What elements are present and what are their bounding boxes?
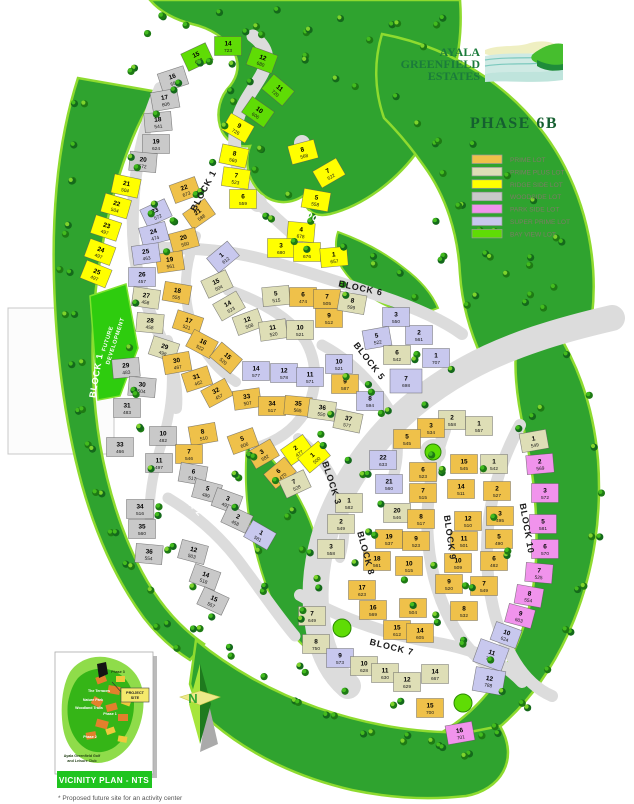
lot-number: 9 [414,536,418,543]
lot-area: 570 [541,551,549,557]
tree-icon [65,222,69,226]
tree-icon [299,547,303,551]
lot-area: 633 [379,462,387,468]
lot-area: 509 [454,565,462,571]
lot: 12629 [394,673,421,692]
lot: 7523 [221,167,250,190]
tree-icon [75,408,79,412]
lot-area: 534 [427,430,435,436]
tree-icon [197,625,201,629]
tree-icon [232,471,236,475]
lot: 7505 [314,290,341,309]
tree-icon [144,30,148,34]
lot-area: 512 [325,320,333,326]
tree-icon [302,57,306,61]
lot: 14667 [422,665,449,684]
tree-icon [360,471,364,475]
lot-area: 542 [490,466,498,472]
lot: 28458 [136,312,165,333]
lot-number: 20 [393,508,401,515]
tree-icon [414,120,418,124]
lot-area: 523 [419,474,427,480]
lot-area: 554 [144,556,153,563]
site-development-map: FUTURE DEVELOPMENT 156881472312680117201… [0,0,634,804]
tree-icon [71,100,75,104]
tree-icon [67,269,71,273]
lot: 3534 [418,419,445,438]
tree-icon [412,356,416,360]
tree-icon [439,466,443,470]
lot: 7525 [525,562,554,583]
lot-area: 515 [272,298,281,305]
tree-icon [369,729,373,733]
lot: 34517 [259,397,286,416]
lot-number: 3 [543,488,547,495]
lot-area: 569 [536,466,545,473]
lot-area: 624 [152,146,160,152]
lot-number: 36 [145,548,153,556]
legend-swatch [472,192,502,201]
tree-icon [433,612,437,616]
tree-icon [81,101,85,105]
lot: 1707 [423,349,450,368]
lot-area: 572 [541,495,549,501]
lot-area: 628 [360,668,368,674]
lot-number: 14 [416,628,424,635]
lot-number: 15 [426,703,434,710]
lot-area: 667 [431,676,439,682]
lot-number: 5 [541,519,545,526]
green-circle-lot [454,694,472,712]
tree-icon [85,442,89,446]
lot: 20546 [384,504,411,523]
tree-icon [123,561,127,565]
lot-number: 3 [279,243,283,250]
tree-icon [563,626,567,630]
lot: 8532 [451,602,478,621]
lot-area: 517 [268,408,276,414]
tree-icon [469,584,473,588]
tree-icon [526,262,530,266]
tree-icon [343,292,347,296]
lot-area: 698 [402,383,410,389]
lot-number: 14 [431,669,439,676]
tree-icon [302,669,306,673]
tree-icon [71,142,75,146]
tree-icon [155,512,159,516]
vicinity-label: Nature Park [83,698,103,702]
legend-swatch [472,205,502,214]
lot-area: 561 [415,337,423,343]
lot-number: 17 [358,585,366,592]
tree-icon [253,23,257,27]
tree-icon [228,653,232,657]
tree-icon [581,583,585,587]
tree-icon [251,454,255,458]
tree-icon [440,170,444,174]
tree-icon [261,673,265,677]
lot-number: 11 [156,458,163,465]
tree-icon [197,60,201,64]
lot-area: 511 [457,491,465,497]
lot: 10521 [326,355,353,374]
tree-icon [175,80,179,84]
legend-swatch [472,217,502,226]
legend-swatch [472,155,502,164]
tree-icon [390,702,394,706]
lot-area: 537 [385,541,393,547]
lot-number: 6 [492,556,496,563]
tree-icon [108,529,112,533]
tree-icon [597,534,601,538]
lot-number: 2 [450,415,454,422]
lot-number: 6 [241,194,245,201]
lot-number: 8 [419,514,423,521]
lot: 31483 [114,399,141,418]
lot-number: 25 [142,248,150,256]
lot: 9523 [403,532,430,551]
tree-icon [257,146,261,150]
lot-area: 680 [277,250,285,256]
compass-n-label: N [188,691,197,706]
tree-icon [495,730,499,734]
lot-number: 10 [296,325,304,332]
lot-area: 707 [432,360,440,366]
lot-area: 463 [142,255,151,262]
tree-icon [318,431,322,435]
lot-area: 569 [369,612,377,618]
lot-area: 523 [412,543,420,549]
tree-icon [209,614,213,618]
tree-icon [434,619,438,623]
tree-icon [154,624,158,628]
lot-area: 561 [166,263,175,270]
tree-icon [428,452,432,456]
tree-icon [378,501,382,505]
tree-icon [62,231,66,235]
lot-area: 458 [145,325,154,332]
tree-icon [216,9,220,13]
tree-icon [405,732,409,736]
lot-number: 7 [421,488,425,495]
vicinity-label: The Terraces [88,689,110,693]
lot-area: 557 [475,428,483,434]
lot-number: 12 [280,368,288,375]
tree-icon [435,138,439,142]
tree-icon [433,218,437,222]
lot-area: 527 [493,493,501,499]
lot-number: 2 [417,330,421,337]
lot-area: 504 [409,610,417,616]
lot-number: 16 [369,605,377,612]
tree-icon [378,410,382,414]
tree-icon [365,381,369,385]
lot-number: 3 [394,312,398,319]
tree-icon [113,529,117,533]
logo-line3: ESTATES [428,69,481,83]
lot-area: 605 [416,635,424,641]
legend-label: WOODSIDE LOT [510,194,561,201]
lot-number: 1 [434,353,438,360]
lot-area: 505 [323,301,331,307]
tree-icon [522,299,526,303]
tree-icon [148,587,152,591]
tree-icon [302,53,306,57]
tree-icon [153,111,157,115]
tree-icon [371,261,375,265]
legend-label: BAY VIEW LOT [510,231,556,238]
lot-area: 523 [231,179,240,186]
lot: 29483 [112,357,141,378]
tree-icon [461,753,465,757]
lot: 8517 [408,510,435,529]
tree-icon [487,254,491,258]
tree-icon [438,257,442,261]
lot-number: 8 [314,639,318,646]
tree-icon [170,543,174,547]
tree-icon [128,563,132,567]
lot-area: 587 [341,386,349,392]
lot: 22633 [370,451,397,470]
lot-number: 14 [224,41,232,48]
tree-icon [503,271,507,275]
tree-icon [574,586,578,590]
tree-icon [544,666,548,670]
legend-row: SUPER PRIME LOT [472,217,570,226]
tree-icon [333,76,337,80]
tree-icon [491,514,495,518]
lot-number: 28 [146,317,154,325]
tree-icon [527,254,531,258]
lot-number: 1 [492,459,496,466]
tree-icon [589,533,593,537]
tree-icon [316,585,320,589]
lot-number: 3 [329,544,333,551]
tree-icon [128,154,132,158]
tree-icon [300,607,304,611]
legend-row: RIDGE SIDE LOT [472,180,563,189]
lot-area: 501 [460,543,468,549]
tree-icon [247,79,251,83]
tree-icon [431,562,435,566]
lot-number: 10 [405,561,413,568]
lot: 17623 [349,581,376,600]
lot: 7515 [410,484,437,503]
lot: 10482 [150,427,177,446]
lot: 7698 [390,369,422,393]
tree-icon [366,37,370,41]
lot-number: 12 [403,677,411,684]
vicinity-label: and Leisure Club [67,759,97,763]
tree-icon [342,688,346,692]
tree-icon [529,413,533,417]
tree-icon [551,284,555,288]
tree-icon [516,425,520,429]
green-circle-lot [333,619,351,637]
tree-icon [323,712,327,716]
lot-area: 559 [239,201,247,207]
lot-area: 546 [185,456,193,462]
legend-label: RIDGE SIDE LOT [510,182,563,189]
lot-area: 612 [393,632,401,638]
lot-number: 33 [243,393,251,401]
tree-icon [190,626,194,630]
tree-icon [480,465,484,469]
tree-icon [79,359,83,363]
lot: 3550 [383,308,410,327]
lot-number: 2 [339,519,343,526]
lot: 7546 [176,445,203,464]
tree-icon [156,504,160,508]
lot: 34516 [127,500,154,519]
lot: 6559 [230,190,257,209]
lot-number: 15 [393,625,401,632]
lot-number: 11 [461,536,468,543]
tree-icon [69,178,73,182]
lot: 19624 [143,135,170,154]
tree-icon [464,302,468,306]
tree-icon [397,270,401,274]
tree-icon [527,291,531,295]
lot-area: 521 [335,366,343,372]
tree-icon [89,446,93,450]
tree-icon [401,577,405,581]
tree-icon [165,547,169,551]
tree-icon [400,739,404,743]
tree-icon [131,387,135,391]
tree-icon [504,172,508,176]
tree-icon [163,248,167,252]
lot-area: 517 [417,521,425,527]
tree-icon [492,723,496,727]
tree-icon [394,20,398,24]
tree-icon [291,238,295,242]
lot: 5545 [394,430,421,449]
lot-number: 7 [404,376,408,383]
lot: 15557 [197,587,230,616]
tree-icon [62,311,66,315]
tree-icon [389,21,393,25]
lot-area: 541 [154,124,163,131]
tree-icon [79,406,83,410]
lot-number: 30 [138,381,146,389]
lot-number: 33 [116,442,124,449]
tree-icon [222,123,226,127]
tree-icon [69,361,73,365]
legend-row: WOODSIDE LOT [472,192,561,201]
tree-icon [538,405,542,409]
tree-icon [137,424,141,428]
lot: 35560 [129,520,156,539]
tree-icon [133,300,137,304]
tree-icon [190,584,194,588]
project-site-label1: PROJECT [126,691,145,695]
lot-area: 577 [252,373,260,379]
lot-area: 542 [393,357,401,363]
lot-area: 532 [460,613,468,619]
lot-area: 550 [317,411,326,418]
lot: 6474 [290,288,317,307]
lot: 5515 [262,285,291,306]
lot-area: 573 [336,660,344,666]
lot: 5490 [486,530,513,549]
lot: 9573 [327,649,354,668]
tree-icon [306,27,310,31]
lot-number: 19 [385,534,393,541]
tree-icon [398,698,402,702]
tree-icon [393,93,397,97]
lot-area: 466 [116,449,124,455]
lot-area: 474 [299,299,307,305]
lot: 1557 [466,417,493,436]
tree-icon [440,15,444,19]
lot: 14605 [407,624,434,643]
lot-number: 26 [138,272,146,279]
lot-number: 22 [379,455,387,462]
lot-area: 549 [337,526,345,532]
tree-icon [345,457,349,461]
lot: 15700 [417,699,444,718]
lot-number: 6 [301,292,305,299]
footnote: * Proposed future site for an activity c… [58,795,183,802]
lot: 3680 [268,239,295,258]
lot: 12503 [178,539,209,564]
lot: 33507 [232,388,261,411]
tree-icon [540,305,544,309]
lot-number: 20 [139,156,147,164]
tree-icon [57,266,61,270]
lot-area: 700 [426,710,434,716]
map-canvas: FUTURE DEVELOPMENT 156881472312680117201… [0,0,634,804]
lot-area: 623 [358,592,366,598]
tree-icon [307,550,311,554]
lot-area: 520 [269,331,278,338]
lot-area: 482 [159,438,167,444]
lot-area: 558 [448,422,456,428]
lot: 15688 [181,43,214,72]
lot-number: 29 [122,362,130,370]
tree-icon [170,218,174,222]
project-site-label2: SITE [131,696,140,700]
logo-waves-icon [485,41,563,82]
legend-label: PRIME LOT [510,157,546,164]
lot-number: 9 [338,653,342,660]
tree-icon [483,251,487,255]
lot-number: 1 [477,421,481,428]
tree-icon [434,22,438,26]
lot: 3572 [532,484,559,503]
tree-icon [128,68,132,72]
tree-icon [252,166,256,170]
lot-number: 12 [464,516,472,523]
legend-row: PARK SIDE LOT [472,205,559,214]
legend-swatch [472,229,502,238]
tree-icon [487,657,491,661]
lot: 9520 [436,575,463,594]
legend-label: PARK SIDE LOT [510,207,559,214]
tree-icon [272,477,276,481]
tree-icon [456,203,460,207]
lot-area: 571 [306,379,314,385]
lot-area: 582 [345,505,353,511]
lot-number: 15 [460,459,468,466]
tree-icon [126,344,130,348]
legend-row: BAY VIEW LOT [472,229,556,238]
tree-icon [290,507,294,511]
lot-area: 510 [464,523,472,529]
tree-icon [174,645,178,649]
tree-icon [479,733,483,737]
